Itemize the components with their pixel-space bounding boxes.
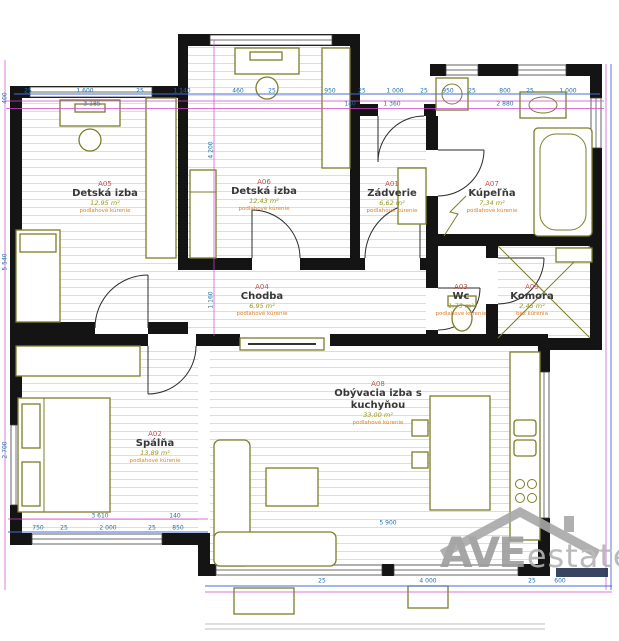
dimension-label: 25 bbox=[420, 88, 428, 95]
dimension-label: 5 540 bbox=[2, 253, 9, 270]
dimension-label: 850 bbox=[172, 525, 183, 532]
dimension-label: 800 bbox=[499, 88, 510, 95]
logo-text-ave: AVE bbox=[440, 532, 525, 574]
dimension-label: 25 bbox=[60, 525, 68, 532]
dimension-label: 140 bbox=[344, 101, 355, 108]
dimension-label: 400 bbox=[2, 92, 9, 103]
dimension-label: 1 140 bbox=[173, 88, 190, 95]
dimension-label: 950 bbox=[324, 88, 335, 95]
dimension-label: 2 000 bbox=[99, 525, 116, 532]
dimension-label: 1 000 bbox=[559, 88, 576, 95]
dimension-label: 1 600 bbox=[76, 88, 93, 95]
furniture-bathroom bbox=[436, 78, 592, 236]
dimension-label: 25 bbox=[268, 88, 276, 95]
dimension-label: 2 700 bbox=[2, 441, 9, 458]
dimension-label: 25 bbox=[468, 88, 476, 95]
dimension-label: 950 bbox=[442, 88, 453, 95]
furniture-entry-hall bbox=[398, 168, 426, 224]
dimension-label: 1 160 bbox=[208, 291, 215, 308]
dimension-label: 460 bbox=[232, 88, 243, 95]
dimension-label: 2 880 bbox=[496, 101, 513, 108]
dimension-label: 25 bbox=[526, 88, 534, 95]
dimension-label: 1 000 bbox=[386, 88, 403, 95]
dimension-label: 3 185 bbox=[83, 101, 100, 108]
dimension-label: 25 bbox=[148, 525, 156, 532]
dimension-label: 5 900 bbox=[379, 520, 396, 527]
dimension-label: 3 610 bbox=[91, 513, 108, 520]
furniture-wc bbox=[448, 296, 476, 331]
ave-estate-logo: AVE estate bbox=[438, 504, 614, 590]
dimension-label: 25 bbox=[358, 88, 366, 95]
floor-plan-canvas: A05Detská izba12,95 m²podlahové kúrenieA… bbox=[0, 0, 619, 641]
dimension-label: 4 200 bbox=[208, 141, 215, 158]
dimension-label: 1 360 bbox=[383, 101, 400, 108]
logo-bar bbox=[556, 568, 608, 577]
dimension-label: 25 bbox=[318, 578, 326, 585]
dimension-label: 4 000 bbox=[419, 578, 436, 585]
dimension-label: 140 bbox=[169, 513, 180, 520]
dimension-label: 750 bbox=[32, 525, 43, 532]
furniture-balcony bbox=[205, 586, 545, 629]
dimension-label: 25 bbox=[24, 88, 32, 95]
dimension-label: 25 bbox=[136, 88, 144, 95]
